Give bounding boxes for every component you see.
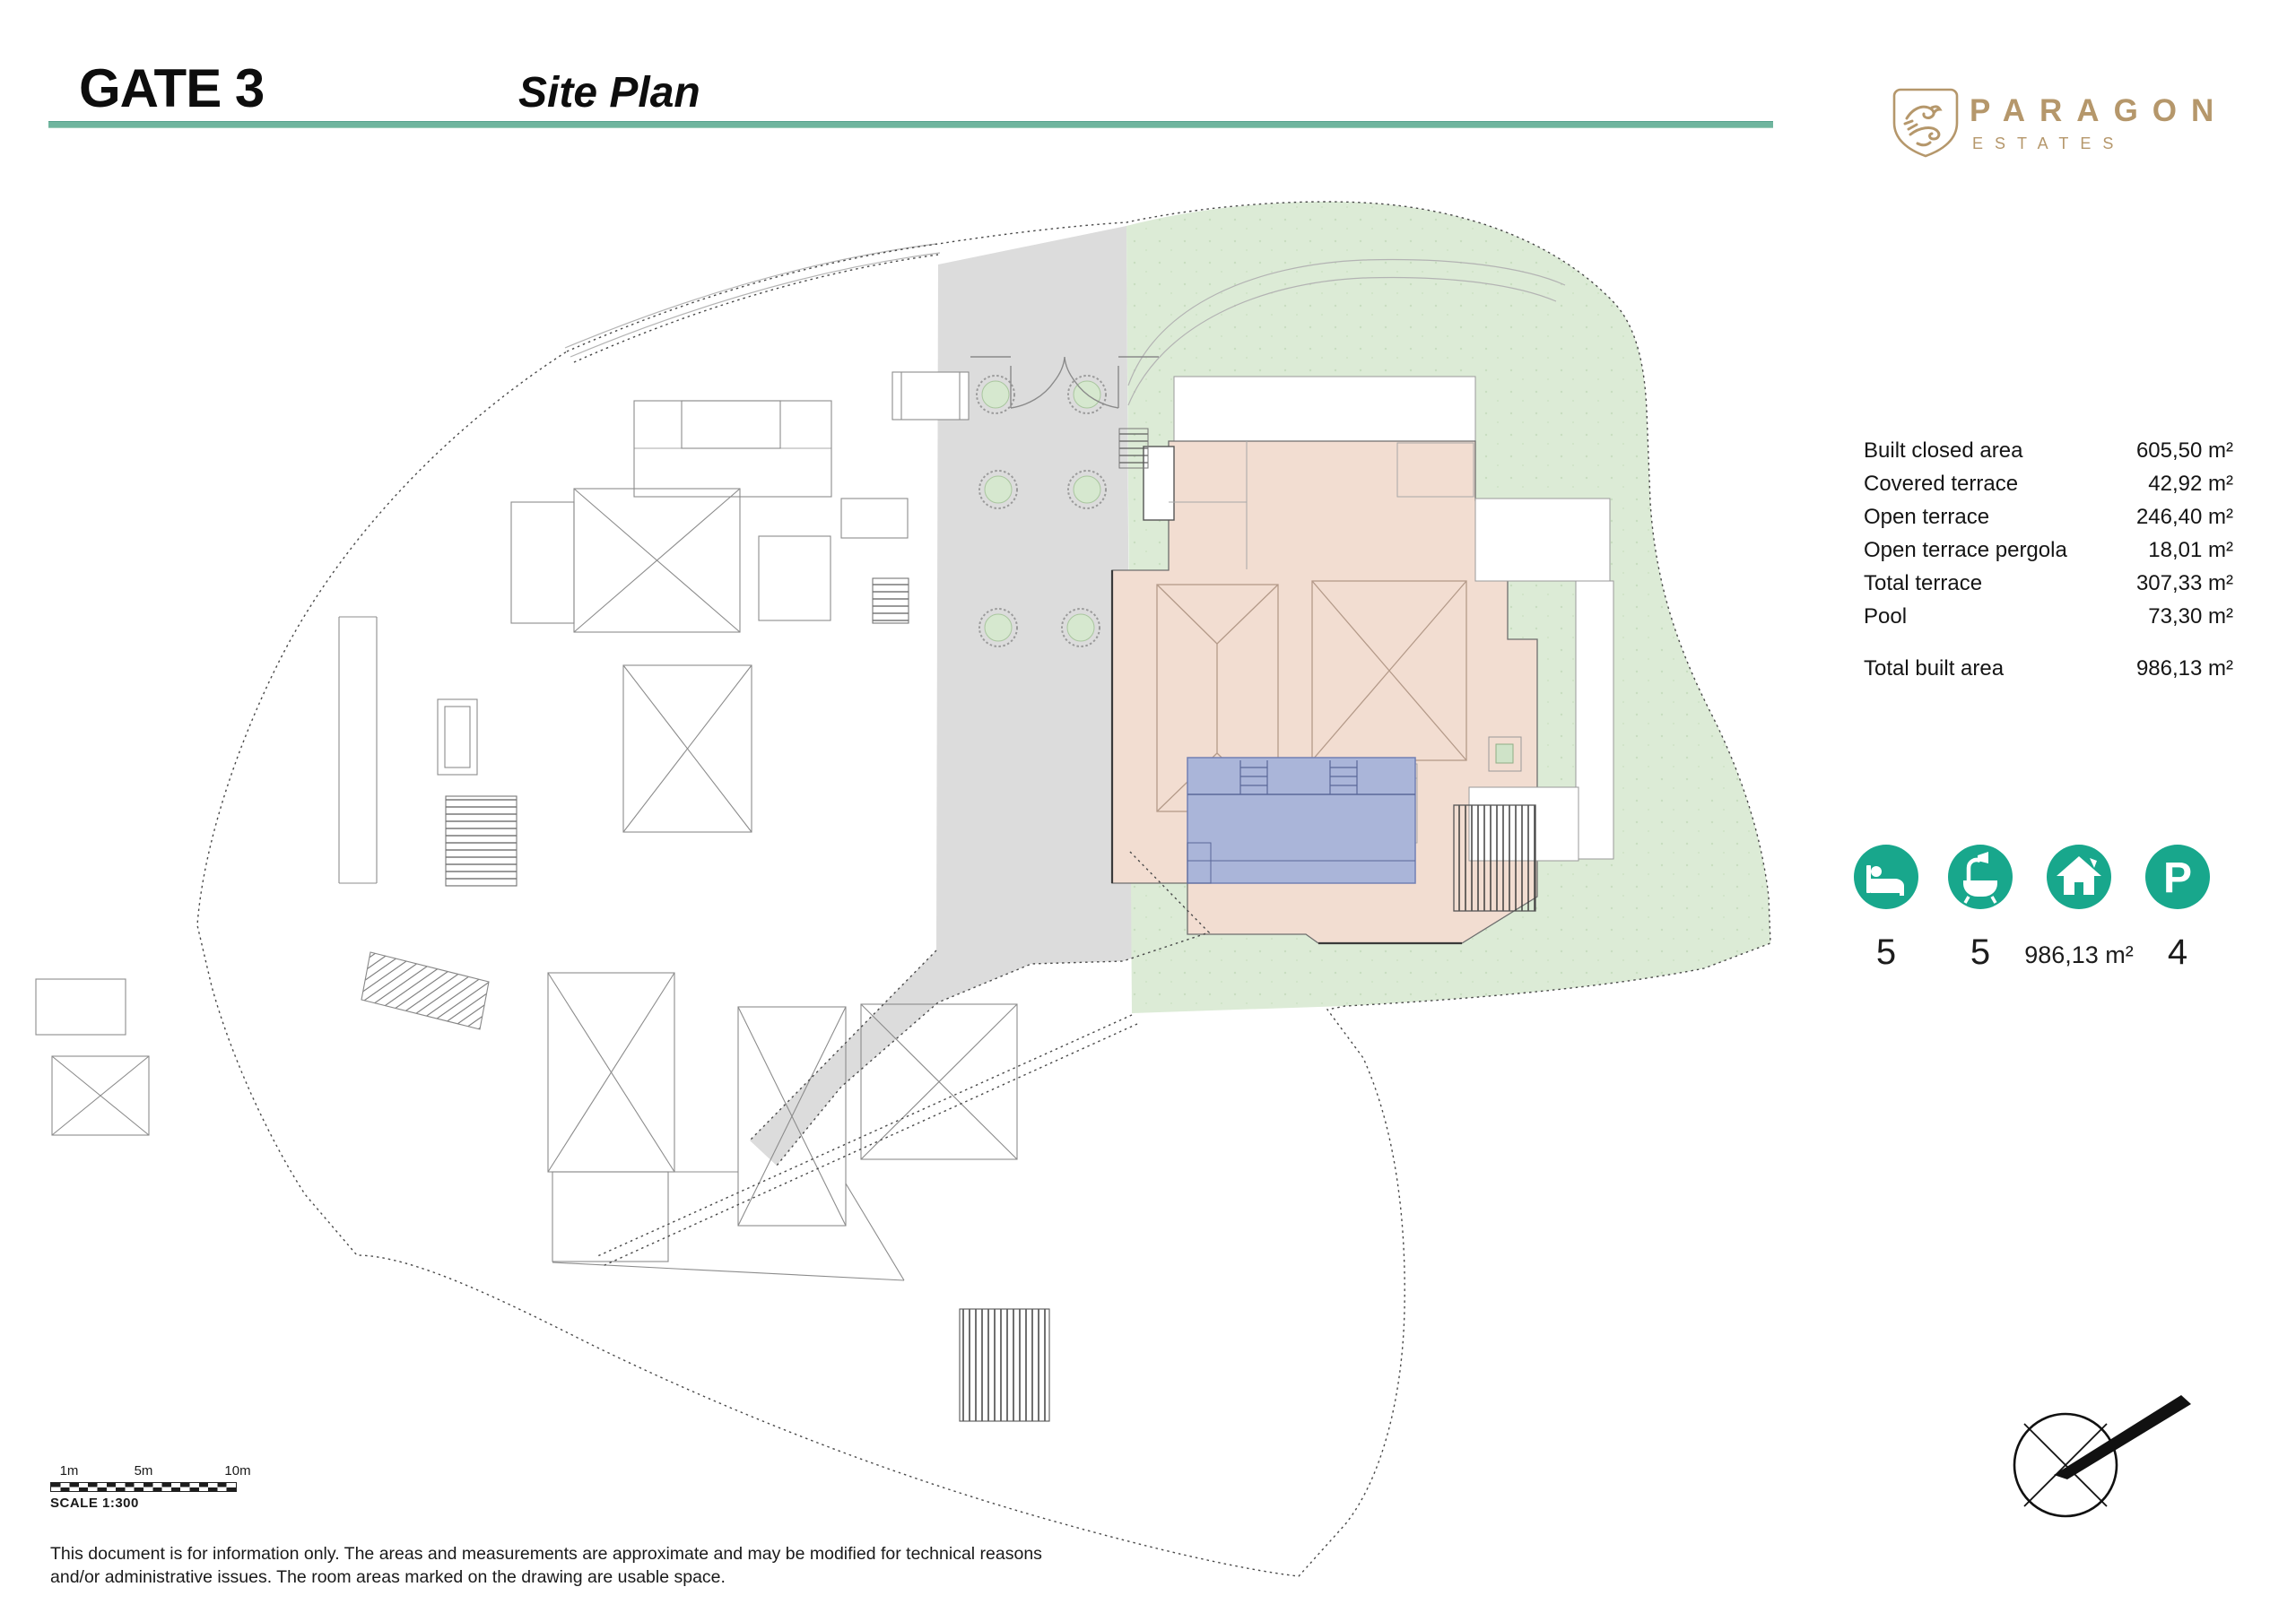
area-label: Total built area	[1864, 652, 2004, 685]
area-row: Total terrace307,33 m²	[1864, 567, 2233, 600]
area-value: 986,13 m²	[2136, 652, 2233, 685]
disclaimer: This document is for information only. T…	[50, 1542, 1234, 1589]
area-value: 18,01 m²	[2148, 533, 2233, 567]
area-label: Open terrace pergola	[1864, 533, 2067, 567]
area-value: 605,50 m²	[2136, 434, 2233, 467]
area-row: Open terrace246,40 m²	[1864, 500, 2233, 533]
site-plan-page: GATE 3 Site Plan PARAGON ESTATES	[0, 0, 2296, 1613]
area-value: 246,40 m²	[2136, 500, 2233, 533]
north-arrow-icon	[2014, 1395, 2191, 1516]
scale-tick-5m: 5m	[135, 1463, 153, 1479]
neighbor-villas	[36, 372, 1049, 1421]
page-title: GATE 3	[79, 57, 264, 119]
villa-footprint	[1112, 377, 1613, 943]
garden-area	[1126, 202, 1770, 1013]
area-label: Total terrace	[1864, 567, 1982, 600]
area-label: Covered terrace	[1864, 467, 2018, 500]
parking-count: 4	[2115, 932, 2240, 973]
feature-parking: P 4	[2115, 845, 2240, 973]
plot-boundary	[197, 202, 1770, 1576]
gate-entrance	[970, 357, 1159, 408]
bed-icon	[1854, 845, 1918, 909]
area-table: Built closed area605,50 m² Covered terra…	[1864, 434, 2233, 685]
garden-terraces	[1469, 499, 1613, 861]
area-value: 307,33 m²	[2136, 567, 2233, 600]
area-label: Pool	[1864, 600, 1907, 633]
brand-shield-icon	[1892, 88, 1959, 158]
driveway-area	[750, 226, 1209, 1166]
area-value: 73,30 m²	[2148, 600, 2233, 633]
roof-lines	[1157, 581, 1466, 811]
stairs-hatch	[1454, 805, 1535, 911]
pool	[1187, 758, 1415, 883]
scale-bar	[50, 1482, 237, 1492]
brand-tagline: ESTATES	[1972, 134, 2125, 153]
bath-icon	[1948, 845, 2013, 909]
site-plan-drawing	[0, 0, 2296, 1613]
scale-tick-1m: 1m	[60, 1463, 79, 1479]
house-icon	[2047, 845, 2111, 909]
trees	[977, 376, 1106, 646]
scale-tick-10m: 10m	[224, 1463, 250, 1479]
area-label: Open terrace	[1864, 500, 1989, 533]
area-row: Pool73,30 m²	[1864, 600, 2233, 633]
header-rule	[48, 121, 1773, 128]
disclaimer-line-1: This document is for information only. T…	[50, 1542, 1234, 1565]
area-row: Built closed area605,50 m²	[1864, 434, 2233, 467]
scale-label: SCALE 1:300	[50, 1496, 139, 1511]
page-subtitle: Site Plan	[518, 68, 700, 117]
pool-ladder	[1240, 760, 1357, 794]
svg-text:P: P	[2163, 854, 2192, 902]
area-label: Built closed area	[1864, 434, 2022, 467]
disclaimer-line-2: and/or administrative issues. The room a…	[50, 1565, 1234, 1589]
area-value: 42,92 m²	[2148, 467, 2233, 500]
area-total-row: Total built area986,13 m²	[1864, 652, 2233, 685]
parking-icon: P	[2145, 845, 2210, 909]
area-row: Covered terrace42,92 m²	[1864, 467, 2233, 500]
road-lines	[565, 244, 1565, 405]
area-row: Open terrace pergola18,01 m²	[1864, 533, 2233, 567]
brand-name: PARAGON	[1970, 93, 2228, 129]
